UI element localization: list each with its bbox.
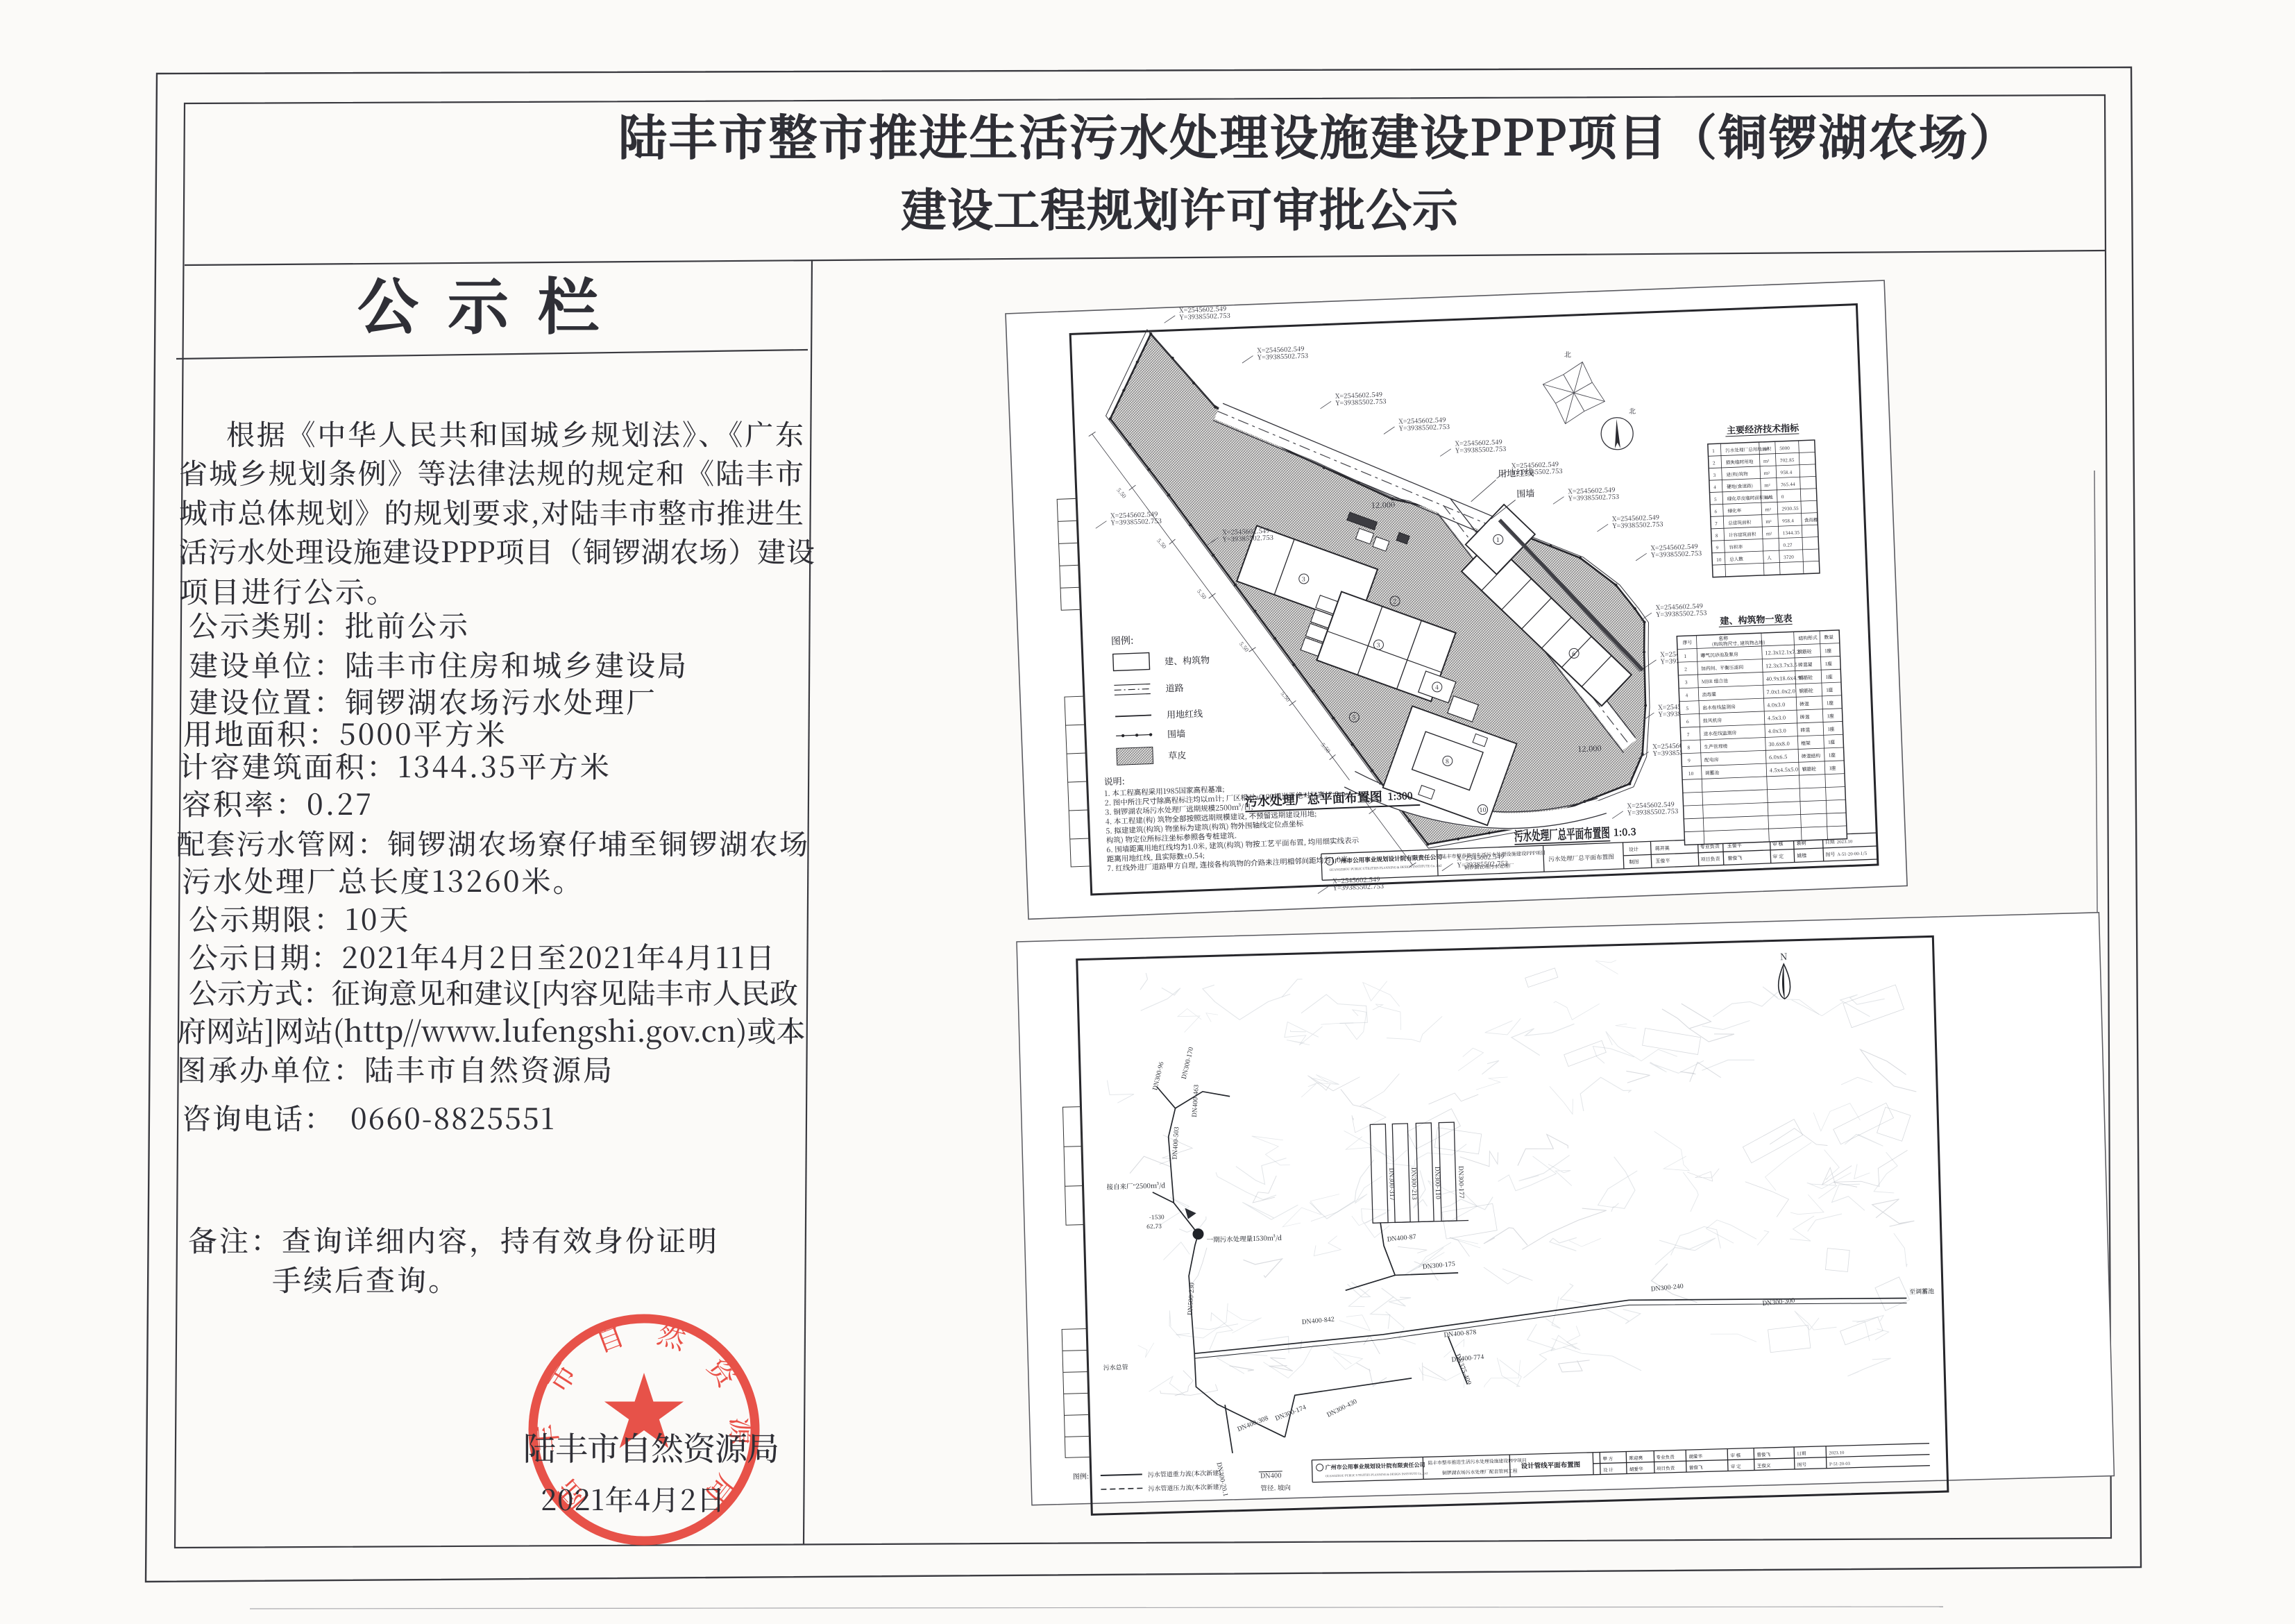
svg-text:5: 5 [1686,704,1688,711]
svg-text:项目负责: 项目负责 [1700,856,1720,863]
svg-text:m²: m² [1763,457,1770,464]
svg-text:12.000: 12.000 [1371,499,1396,511]
svg-text:用地红线: 用地红线 [1498,465,1534,480]
svg-text:设 计: 设 计 [1603,1466,1614,1473]
svg-text:1: 1 [1712,447,1715,454]
svg-text:一期污水处理量1530m³/d: 一期污水处理量1530m³/d [1207,1233,1282,1244]
svg-text:DN300-110: DN300-110 [1433,1167,1443,1200]
svg-text:1座: 1座 [1827,712,1835,719]
svg-text:草皮: 草皮 [1168,748,1187,762]
svg-text:制图: 制图 [1629,858,1638,866]
svg-text:胡爱华: 胡爱华 [1688,1453,1702,1460]
svg-text:10: 10 [1688,770,1694,777]
svg-text:1座: 1座 [1827,725,1835,732]
svg-text:进水在线监测房: 进水在线监测房 [1703,729,1736,737]
svg-text:8: 8 [1716,532,1718,539]
svg-text:设计管线平面布置图: 设计管线平面布置图 [1521,1459,1580,1470]
svg-text:建(构)筑物: 建(构)筑物 [1726,470,1748,477]
svg-text:6: 6 [1572,649,1576,658]
svg-text:765.44: 765.44 [1781,480,1795,488]
svg-text:图例:: 图例: [1073,1470,1090,1481]
svg-text:12.000: 12.000 [1577,743,1602,754]
svg-text:5: 5 [1714,496,1717,502]
svg-text:m²: m² [1763,445,1769,452]
svg-text:m²: m² [1764,481,1770,488]
svg-text:序号: 序号 [1682,638,1692,646]
svg-text:3: 3 [1713,471,1716,478]
svg-text:N: N [1780,949,1788,963]
svg-text:曾俊飞: 曾俊飞 [1689,1464,1703,1471]
svg-text:7: 7 [1715,520,1718,527]
svg-text:-1530: -1530 [1149,1212,1165,1221]
svg-text:砖混凝: 砖混凝 [1798,661,1813,668]
svg-text:砖混: 砖混 [1799,700,1809,707]
svg-text:7.0x1.0x2.0: 7.0x1.0x2.0 [1766,687,1795,696]
svg-text:容积率: 容积率 [1729,543,1743,550]
svg-text:0.27: 0.27 [1783,541,1793,548]
svg-text:污水总管: 污水总管 [1103,1362,1128,1372]
svg-text:人: 人 [1767,554,1772,561]
svg-text:Y=39385502.753: Y=39385502.753 [1612,518,1663,530]
svg-text:m²: m² [1765,518,1772,525]
svg-text:A-51-20-00-1/5: A-51-20-00-1/5 [1837,850,1868,858]
svg-text:蒋开英: 蒋开英 [1655,845,1670,852]
svg-text:3: 3 [1302,574,1306,583]
svg-text:图号: 图号 [1825,851,1835,858]
svg-text:3: 3 [1685,678,1688,685]
svg-text:958.4: 958.4 [1780,468,1793,476]
svg-text:1座: 1座 [1829,751,1836,758]
svg-text:9: 9 [1688,756,1691,763]
svg-text:3720: 3720 [1784,553,1794,561]
svg-text:砖混结构: 砖混结构 [1802,752,1821,759]
svg-text:958.4: 958.4 [1782,516,1795,524]
svg-text:1: 1 [1684,652,1686,659]
svg-text:日期: 日期 [1797,1449,1806,1456]
svg-text:胡爱华: 胡爱华 [1629,1465,1643,1473]
svg-text:北: 北 [1564,348,1571,359]
svg-text:总人数: 总人数 [1729,555,1744,562]
svg-text:4.0x3.0: 4.0x3.0 [1768,727,1786,735]
svg-text:数量: 数量 [1824,633,1834,641]
svg-text:王俊义: 王俊义 [1757,1462,1771,1469]
svg-text:7: 7 [1686,731,1689,738]
svg-text:Y=39385502.753: Y=39385502.753 [1332,881,1384,893]
svg-text:配电房: 配电房 [1704,756,1719,763]
svg-text:陈迎亮: 陈迎亮 [1629,1454,1643,1462]
svg-text:4: 4 [1713,483,1716,490]
svg-text:1:300: 1:300 [1387,788,1413,803]
svg-text:1: 1 [1496,535,1500,544]
svg-text:30.6x8.0: 30.6x8.0 [1768,740,1790,748]
svg-text:钢筋砼: 钢筋砼 [1798,674,1813,682]
svg-text:设计: 设计 [1629,846,1638,854]
svg-text:Y=39385502.753: Y=39385502.753 [1568,491,1619,503]
svg-text:8: 8 [1446,756,1450,766]
svg-text:Y=39385502.753: Y=39385502.753 [1656,607,1707,619]
svg-text:2023.10: 2023.10 [1829,1449,1845,1456]
svg-text:王俊平: 王俊平 [1655,857,1670,865]
svg-text:说明:: 说明: [1103,774,1125,788]
svg-text:1座: 1座 [1825,673,1833,679]
svg-text:m²: m² [1765,505,1771,512]
svg-text:曾俊飞: 曾俊飞 [1756,1450,1770,1458]
svg-text:1座: 1座 [1826,686,1834,693]
svg-text:1:0.3: 1:0.3 [1614,824,1637,839]
svg-text:1座: 1座 [1827,699,1834,706]
svg-text:管径. 坡向: 管径. 坡向 [1260,1482,1291,1493]
svg-text:图例:: 图例: [1111,633,1134,648]
svg-text:Y=39385502.753: Y=39385502.753 [1257,350,1308,362]
svg-text:审 定: 审 定 [1772,853,1784,861]
svg-text:4.0x3.0: 4.0x3.0 [1767,701,1786,709]
svg-text:Y=39385502.753: Y=39385502.753 [1455,443,1507,455]
svg-text:MBR 组合池: MBR 组合池 [1702,677,1729,684]
svg-text:6: 6 [1714,507,1717,514]
svg-text:项目负责: 项目负责 [1657,1464,1675,1472]
svg-text:12.3x12.1x7.2: 12.3x12.1x7.2 [1765,648,1799,657]
svg-text:计容建筑面积: 计容建筑面积 [1729,530,1756,539]
svg-text:DN300-177: DN300-177 [1457,1166,1466,1199]
svg-text:5000: 5000 [1779,444,1790,452]
svg-text:702.85: 702.85 [1780,456,1795,464]
svg-text:4.5x4.5x5.0: 4.5x4.5x5.0 [1770,766,1799,775]
svg-text:Y=39385502.753: Y=39385502.753 [1651,548,1702,559]
svg-text:用地红线: 用地红线 [1167,707,1203,721]
svg-text:钢筋砼: 钢筋砼 [1797,648,1812,655]
svg-text:砖混: 砖混 [1800,726,1810,734]
svg-text:6: 6 [1686,718,1689,725]
svg-text:4: 4 [1685,691,1688,698]
svg-text:Y=39385502.753: Y=39385502.753 [1398,421,1450,433]
svg-text:6.0x6.5: 6.0x6.5 [1769,753,1788,761]
svg-text:损失临时用地: 损失临时用地 [1726,457,1754,466]
svg-text:5: 5 [1352,713,1356,722]
svg-text:12.3x3.7x3.5: 12.3x3.7x3.5 [1765,661,1797,670]
svg-text:1座: 1座 [1824,647,1832,654]
svg-text:含雨棚: 含雨棚 [1804,516,1819,523]
svg-text:硬地(含道路): 硬地(含道路) [1727,482,1753,489]
svg-text:建、构筑物: 建、构筑物 [1165,652,1210,667]
svg-text:审 核: 审 核 [1730,1451,1741,1458]
svg-text:总建筑面积: 总建筑面积 [1728,518,1752,526]
svg-text:生产管理楼: 生产管理楼 [1704,742,1728,750]
svg-text:8: 8 [1687,743,1690,750]
svg-text:至调蓄池: 至调蓄池 [1909,1286,1934,1296]
svg-text:围墙: 围墙 [1516,486,1535,500]
svg-text:9: 9 [1716,543,1718,550]
svg-text:2: 2 [1393,596,1397,605]
svg-text:钢筋砼: 钢筋砼 [1802,765,1816,772]
svg-text:Y=39385502.753: Y=39385502.753 [1110,516,1162,527]
svg-text:m²: m² [1763,469,1770,476]
svg-text:Y=39385502.753: Y=39385502.753 [1179,310,1230,322]
svg-text:DN300-213: DN300-213 [1409,1167,1419,1200]
svg-text:姚桂: 姚桂 [1797,852,1806,860]
svg-text:框架: 框架 [1801,739,1811,747]
svg-text:Y=39385502.753: Y=39385502.753 [1627,806,1679,818]
svg-text:2930.55: 2930.55 [1781,505,1799,512]
svg-text:0: 0 [1781,493,1784,500]
svg-text:出水在线监测房: 出水在线监测房 [1702,702,1736,711]
svg-text:m²: m² [1766,530,1772,536]
svg-text:围墙: 围墙 [1167,727,1186,741]
svg-text:10: 10 [1716,556,1722,563]
svg-text:1座: 1座 [1825,660,1833,667]
svg-text:2: 2 [1713,459,1716,466]
svg-text:调蓄池: 调蓄池 [1705,768,1720,776]
svg-text:审 定: 审 定 [1731,1462,1742,1469]
svg-text:1座: 1座 [1829,764,1836,771]
svg-text:消毒渠: 消毒渠 [1702,691,1716,698]
svg-text:接自来厂"2500m³/d: 接自来厂"2500m³/d [1106,1180,1165,1191]
svg-text:道路: 道路 [1165,681,1184,695]
svg-text:10: 10 [1479,805,1487,814]
svg-text:4.5x3.0: 4.5x3.0 [1768,714,1786,722]
svg-text:1344.35: 1344.35 [1783,529,1800,536]
svg-text:北: 北 [1629,405,1636,416]
svg-text:资: 资 [700,1348,748,1394]
svg-text:钢筋砼: 钢筋砼 [1799,686,1813,694]
svg-text:图号: 图号 [1797,1460,1807,1467]
svg-text:结构形式: 结构形式 [1798,634,1818,641]
svg-text:3: 3 [1376,640,1380,649]
svg-text:砖混: 砖混 [1800,713,1810,720]
svg-text:专业负责: 专业负责 [1656,1453,1675,1461]
svg-text:曝气沉砂池及泵房: 曝气沉砂池及泵房 [1700,650,1738,659]
svg-text:DN300-317: DN300-317 [1387,1167,1397,1201]
svg-text:1座: 1座 [1828,738,1836,745]
svg-text:鼓风机房: 鼓风机房 [1703,716,1722,724]
svg-text:P-51-20-03: P-51-20-03 [1829,1460,1851,1467]
svg-text:m²: m² [1765,493,1771,500]
svg-text:甲 方: 甲 方 [1602,1455,1614,1462]
svg-text:2: 2 [1684,666,1687,673]
svg-text:绿化率: 绿化率 [1727,507,1742,514]
svg-text:4: 4 [1435,682,1439,691]
svg-text:曾俊飞: 曾俊飞 [1727,854,1742,862]
svg-text:Y=39385502.753: Y=39385502.753 [1335,396,1387,407]
svg-text:Y=39385502.753: Y=39385502.753 [1222,532,1273,544]
svg-text:62.73: 62.73 [1146,1221,1162,1230]
